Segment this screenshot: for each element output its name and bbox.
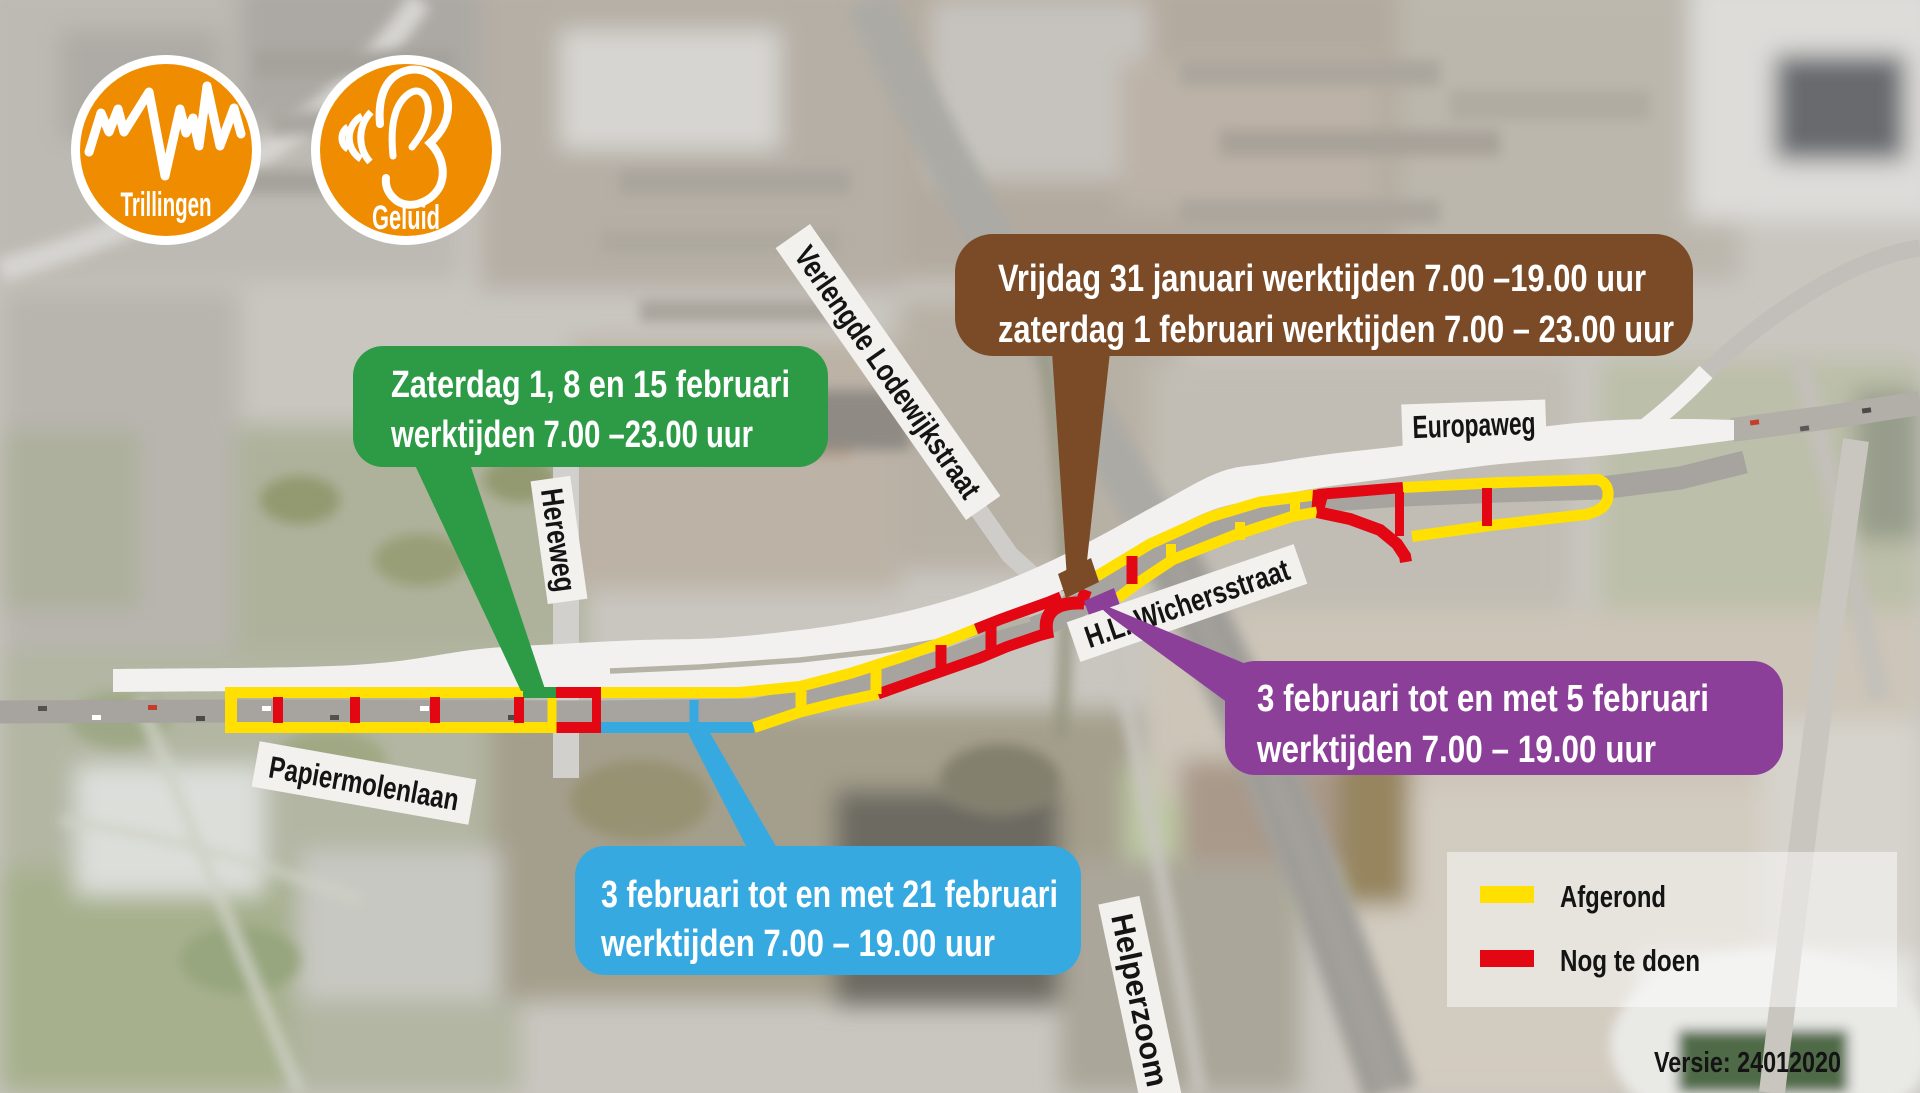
svg-text:werktijden 7.00 –23.00 uur: werktijden 7.00 –23.00 uur xyxy=(390,414,753,456)
svg-text:Trillingen: Trillingen xyxy=(121,186,212,224)
svg-text:werktijden 7.00 – 19.00 uur: werktijden 7.00 – 19.00 uur xyxy=(600,923,995,965)
svg-text:3 februari tot en met 5 februa: 3 februari tot en met 5 februari xyxy=(1257,678,1709,720)
svg-text:Nog te doen: Nog te doen xyxy=(1560,943,1700,978)
svg-text:Versie: 24012020: Versie: 24012020 xyxy=(1654,1047,1841,1079)
svg-text:3 februari tot en met 21 febru: 3 februari tot en met 21 februari xyxy=(601,874,1058,916)
svg-text:Zaterdag 1, 8 en 15 februari: Zaterdag 1, 8 en 15 februari xyxy=(391,364,790,406)
svg-text:Europaweg: Europaweg xyxy=(1412,405,1536,445)
svg-text:Afgerond: Afgerond xyxy=(1560,879,1666,914)
svg-text:zaterdag 1 februari werktijden: zaterdag 1 februari werktijden 7.00 – 23… xyxy=(998,309,1674,351)
svg-text:werktijden 7.00 – 19.00 uur: werktijden 7.00 – 19.00 uur xyxy=(1256,729,1656,771)
svg-text:Geluid: Geluid xyxy=(372,199,440,237)
svg-text:Vrijdag 31 januari werktijden: Vrijdag 31 januari werktijden 7.00 –19.0… xyxy=(998,258,1646,300)
